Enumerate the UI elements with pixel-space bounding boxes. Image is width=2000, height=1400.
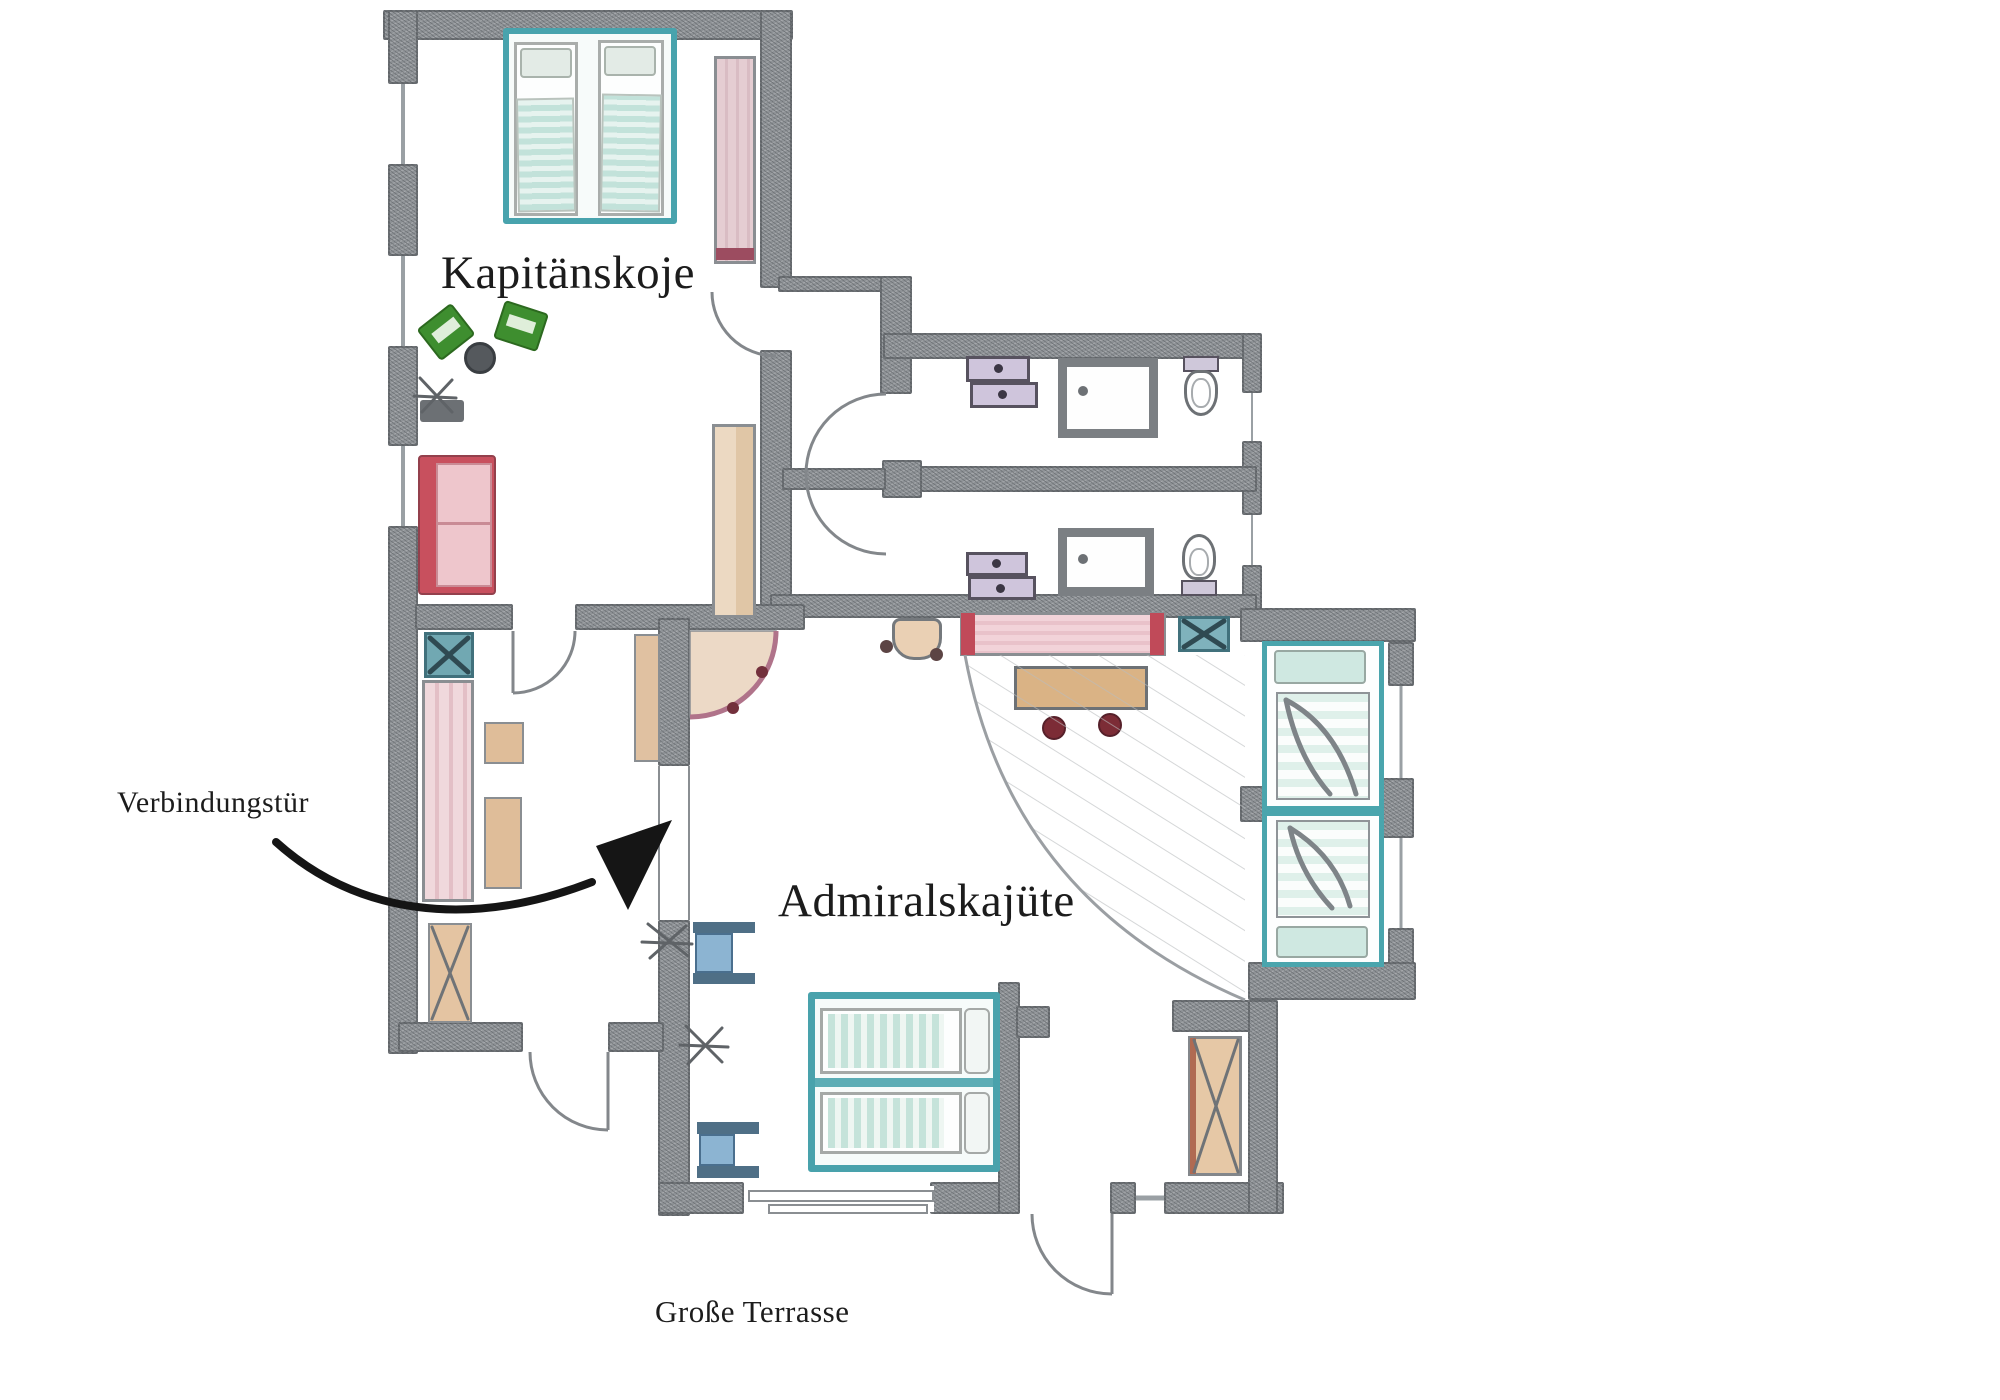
bed-pillow: [1274, 650, 1366, 684]
nightstand: [697, 1122, 759, 1134]
wall: [782, 468, 886, 490]
window: [388, 256, 418, 346]
drawer-knob: [994, 364, 1003, 373]
window: [1388, 838, 1414, 928]
sideboard-end: [961, 613, 975, 655]
wall-radiator: [420, 400, 464, 422]
shower: [1058, 358, 1158, 438]
bed-blanket: [516, 98, 576, 213]
wall: [1248, 962, 1416, 1000]
sofa-divider: [436, 522, 492, 525]
bed-pillow: [604, 46, 656, 76]
wardrobe: [714, 56, 756, 264]
bench: [634, 634, 660, 762]
wardrobe-edge: [1190, 1038, 1196, 1174]
wall: [575, 604, 805, 630]
wall: [658, 1182, 744, 1214]
bed-blanket: [828, 1014, 944, 1068]
toilet-bowl-inner: [1191, 378, 1211, 408]
shaft-box: [1178, 616, 1230, 652]
storage-chest: [428, 923, 472, 1023]
wall: [388, 346, 418, 446]
toilet-bowl-inner: [1189, 548, 1209, 576]
wall: [1110, 1182, 1136, 1214]
hall-wardrobe: [422, 680, 474, 902]
door-arc: [530, 1052, 608, 1130]
stool: [1042, 716, 1066, 740]
tall-wardrobe: [712, 424, 756, 618]
connecting-door: [658, 766, 690, 920]
wall: [388, 526, 418, 1054]
sideboard: [960, 612, 1166, 656]
bench: [484, 722, 524, 764]
sliding-door-leaf: [768, 1204, 928, 1214]
sideboard-end: [1150, 613, 1164, 655]
window: [1388, 686, 1414, 778]
dining-table: [1014, 666, 1148, 710]
window: [1136, 1186, 1164, 1210]
sliding-door-leaf: [748, 1190, 934, 1202]
wall: [1172, 1000, 1250, 1032]
wall: [388, 164, 418, 256]
wall: [658, 920, 690, 1216]
wall: [882, 460, 922, 498]
wall: [388, 10, 418, 84]
bed-blanket: [600, 93, 662, 212]
round-side-table: [464, 342, 496, 374]
bed-pillow: [964, 1008, 990, 1074]
wall: [1388, 642, 1414, 686]
annotation-arrow: [276, 820, 672, 910]
shower-drain: [1078, 386, 1088, 396]
drawer-knob: [992, 559, 1001, 568]
door-arc: [513, 631, 575, 693]
wall: [1016, 1006, 1050, 1038]
drawer-knob: [996, 584, 1005, 593]
shower: [1058, 528, 1154, 596]
floor-plan: Kapitänskoje Admiralskajüte Verbindungst…: [0, 0, 2000, 1400]
wall: [415, 604, 513, 630]
wall: [760, 10, 792, 288]
corner-unit: [690, 631, 776, 717]
window: [1242, 393, 1262, 441]
stool: [1098, 713, 1122, 737]
nightstand: [693, 922, 755, 933]
bench: [484, 797, 522, 889]
window: [388, 84, 418, 164]
wall: [1380, 778, 1414, 838]
bed-pillow: [520, 48, 572, 78]
shower-drain: [1078, 554, 1088, 564]
wall: [884, 466, 1257, 492]
bed-pillow: [1276, 926, 1368, 958]
room-label-kapitaenskoje: Kapitänskoje: [441, 246, 695, 300]
toilet-tank: [1181, 580, 1217, 596]
wall: [608, 1022, 664, 1052]
bed-divider: [815, 1078, 993, 1087]
wall: [1240, 786, 1264, 822]
nightstand: [699, 1134, 735, 1166]
wardrobe-base: [716, 248, 754, 260]
wall: [1248, 1000, 1278, 1214]
drawer-knob: [998, 390, 1007, 399]
nightstand: [697, 1166, 759, 1178]
wall: [658, 618, 690, 766]
window: [388, 446, 418, 526]
basin-knob: [880, 640, 893, 653]
basin-knob: [930, 648, 943, 661]
wall: [398, 1022, 523, 1052]
nightstand: [693, 973, 755, 984]
wall: [1240, 608, 1416, 642]
room-label-admiralskajuete: Admiralskajüte: [778, 874, 1075, 928]
bed-duvet: [1276, 692, 1370, 800]
bed-pillow: [964, 1092, 990, 1154]
built-in-wardrobe: [1188, 1036, 1242, 1176]
sofa-cushions: [436, 463, 492, 587]
annotation-connecting-door: Verbindungstür: [117, 786, 309, 820]
wall: [1242, 333, 1262, 393]
door-arc: [1032, 1214, 1112, 1294]
shaft-box: [424, 632, 474, 678]
bed-duvet: [1276, 820, 1370, 918]
bed-blanket: [828, 1098, 944, 1148]
nightstand: [695, 933, 733, 973]
window: [1242, 515, 1262, 565]
terrace-label: Große Terrasse: [655, 1294, 849, 1330]
door-arc: [712, 292, 776, 356]
